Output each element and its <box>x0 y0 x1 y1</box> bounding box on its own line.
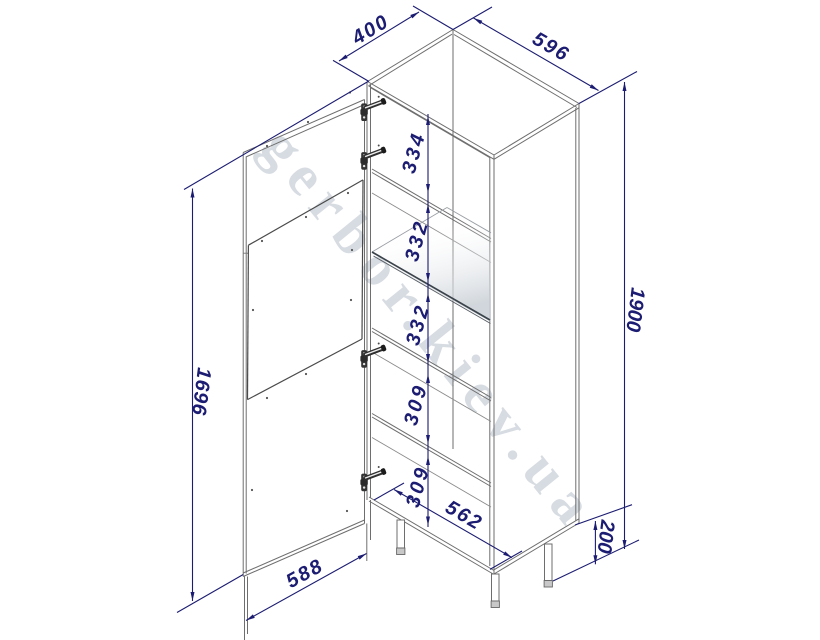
svg-text:200: 200 <box>593 518 619 555</box>
